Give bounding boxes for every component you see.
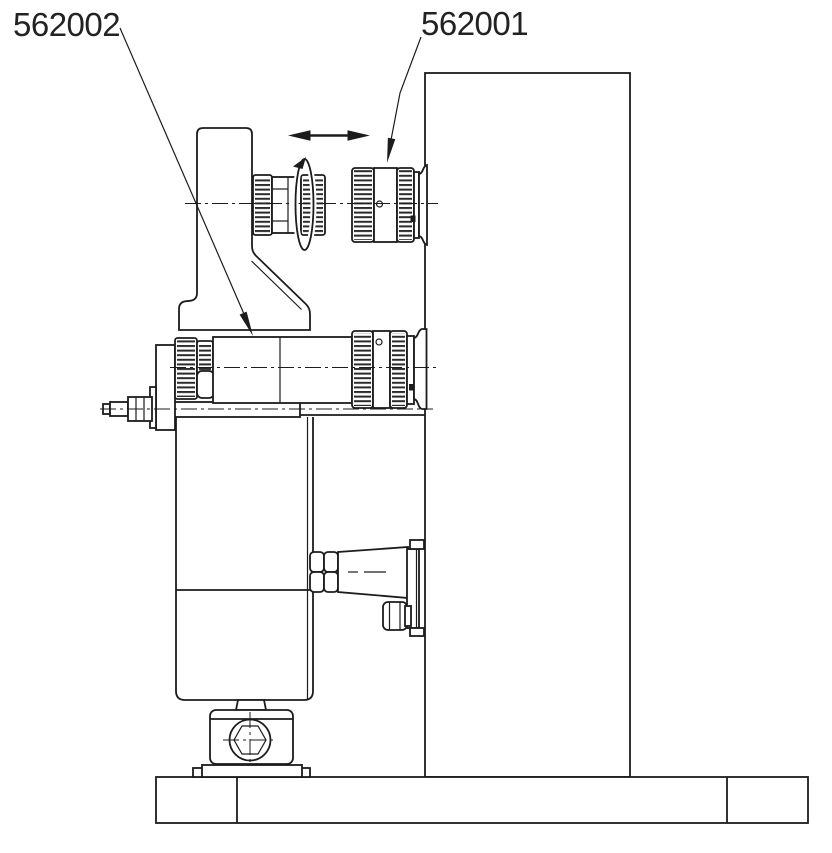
lock-button [383, 602, 411, 630]
translation-arrow [288, 130, 370, 140]
mounting-flange [414, 329, 427, 409]
base-plate [156, 777, 808, 823]
clamp-knob [310, 540, 424, 636]
thimble-band [373, 331, 390, 408]
arrowhead-left-icon [288, 130, 311, 140]
technical-diagram: 562002 562001 [0, 0, 832, 853]
part-label-562001: 562001 [421, 7, 528, 40]
rotation-arrowhead-icon [293, 157, 306, 169]
thimble-knurled-ring [397, 168, 414, 242]
mounting-flange [419, 165, 427, 245]
clamp-collar [197, 371, 214, 398]
micrometer-body [213, 337, 352, 403]
knurled-ring [175, 338, 197, 399]
part-label-562002: 562002 [13, 8, 120, 41]
stage-body [176, 417, 313, 700]
set-screw [411, 216, 416, 223]
swivel-clamp [193, 700, 310, 777]
leader-562001 [387, 37, 421, 163]
micrometer-head-upper [253, 165, 427, 245]
knurled-ring [253, 175, 272, 235]
thimble-knurled-ring [390, 331, 407, 408]
clamp-neck [236, 700, 266, 710]
leader-arrowhead-icon [387, 138, 395, 163]
spindle-flange [156, 345, 175, 430]
arrowhead-right-icon [348, 130, 371, 140]
thimble-band [374, 168, 397, 242]
drawing-canvas [0, 0, 832, 853]
thimble-knurled-ring [352, 168, 374, 242]
stand-column [425, 73, 630, 777]
thimble-knurled-ring [352, 331, 373, 408]
